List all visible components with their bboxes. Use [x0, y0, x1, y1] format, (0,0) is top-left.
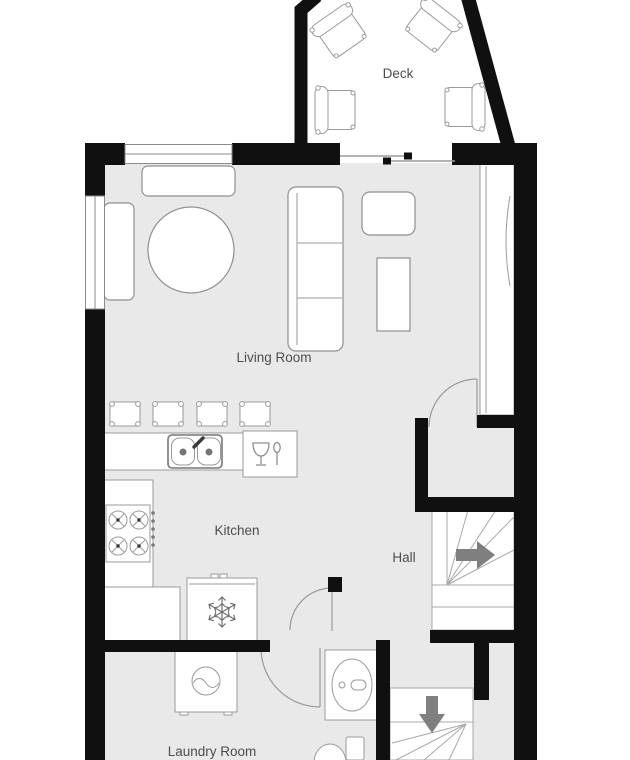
- deck-chair: [445, 83, 485, 131]
- dishwasher: [243, 431, 297, 477]
- deck-chair: [309, 1, 372, 62]
- wall-kitchen-laundry: [85, 640, 270, 652]
- wall-closet-top: [477, 415, 537, 428]
- wardrobe-closet: [480, 164, 514, 415]
- side-table: [377, 258, 410, 331]
- cooktop: [106, 505, 155, 562]
- wall-top-a: [85, 143, 125, 165]
- kitchen-cabinet: [104, 587, 180, 641]
- bathroom-sink: [325, 650, 378, 720]
- sofa: [288, 187, 343, 351]
- wall-closet-left: [415, 418, 428, 510]
- refrigerator: [187, 574, 257, 641]
- bar-stool: [197, 402, 228, 427]
- washing-machine: [175, 650, 237, 715]
- room-label-kitchen: Kitchen: [214, 523, 259, 538]
- wall-wc: [376, 640, 390, 760]
- bar-stool: [110, 402, 141, 427]
- bar-stool: [240, 402, 271, 427]
- staircase-up: [432, 510, 514, 630]
- floor-plan: Deck Living Room Kitchen Hall Laundry Ro…: [0, 0, 630, 760]
- armchair: [362, 192, 415, 235]
- bench: [142, 166, 235, 196]
- room-label-hall: Hall: [392, 550, 415, 565]
- room-label-living-room: Living Room: [236, 350, 311, 365]
- bar-stool: [153, 402, 184, 427]
- round-dining-table: [148, 207, 234, 293]
- deck-chair: [401, 0, 464, 56]
- window-left: [86, 196, 105, 309]
- wall-closet-bottom: [415, 497, 537, 512]
- deck-chair: [315, 86, 355, 134]
- sliding-door: [340, 153, 455, 165]
- wall-top-b: [232, 143, 340, 165]
- wall-stub-lower: [474, 643, 489, 700]
- staircase-down: [390, 688, 473, 760]
- wall-stub-hall: [328, 577, 342, 592]
- room-label-deck: Deck: [383, 66, 414, 81]
- wall-right: [514, 143, 537, 760]
- double-sink: [168, 435, 222, 468]
- room-label-laundry-room: Laundry Room: [168, 744, 257, 759]
- wall-stair-bottom: [430, 630, 517, 643]
- window-top: [125, 145, 232, 164]
- sideboard: [104, 203, 134, 300]
